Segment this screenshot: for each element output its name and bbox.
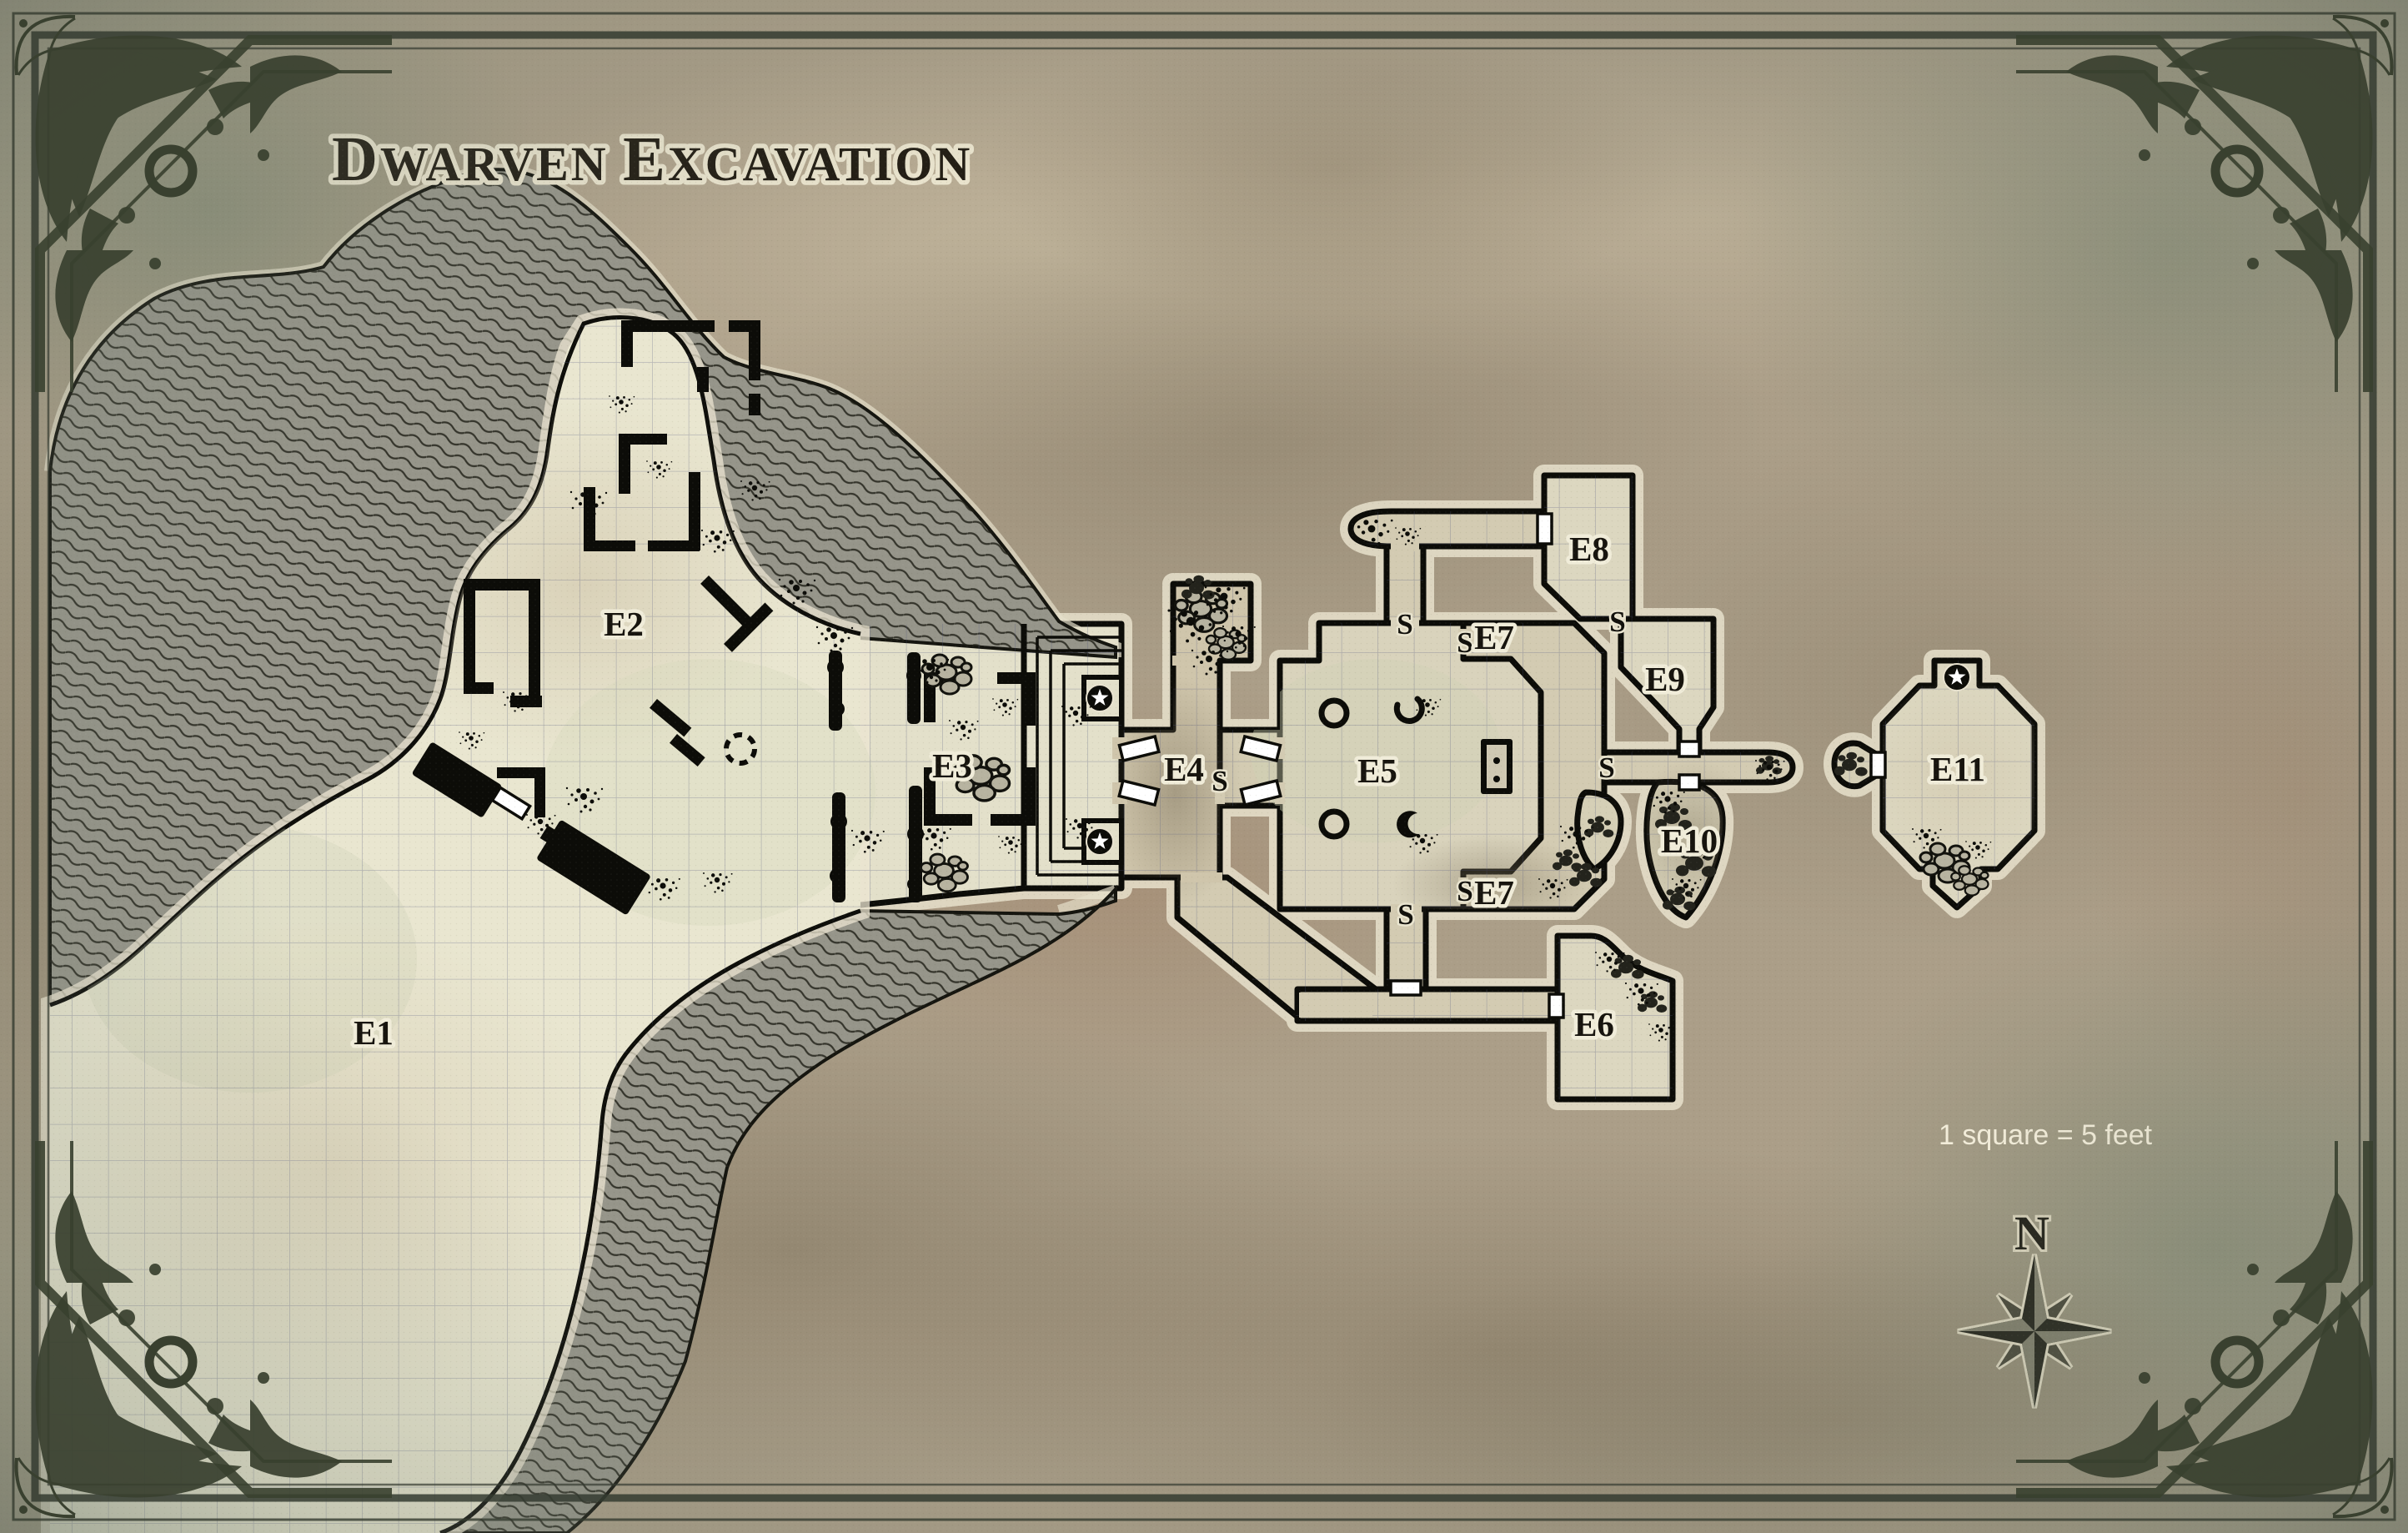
dwarven-excavation-map: S S S S S S S E1 E2 E3 E4 E5 E6 E7 E7 E8… [0,0,2408,1533]
map-page: S S S S S S S E1 E2 E3 E4 E5 E6 E7 E7 E8… [0,0,2408,1533]
vignette [0,0,2408,1533]
